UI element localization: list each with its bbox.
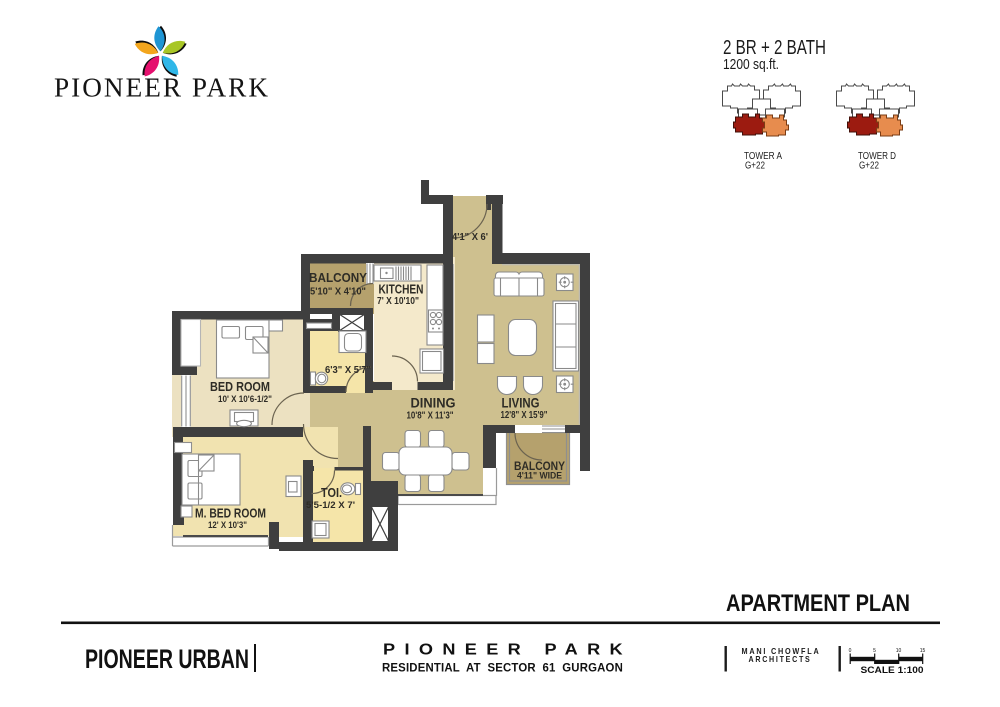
svg-text:7' X 10'10": 7' X 10'10" [377, 296, 419, 307]
svg-text:APARTMENT PLAN: APARTMENT PLAN [726, 590, 910, 617]
svg-text:5'10" X 4'10": 5'10" X 4'10" [310, 287, 366, 298]
svg-text:DINING: DINING [411, 396, 456, 411]
svg-text:4'1" X 6': 4'1" X 6' [452, 232, 488, 243]
svg-text:10' X 10'6-1/2": 10' X 10'6-1/2" [218, 394, 272, 405]
svg-text:12'8" X 15'9": 12'8" X 15'9" [501, 410, 548, 421]
svg-text:ARCHITECTS: ARCHITECTS [749, 655, 812, 664]
svg-text:M. BED ROOM: M. BED ROOM [195, 507, 266, 521]
svg-text:G+22: G+22 [859, 161, 879, 172]
svg-text:TOI.: TOI. [321, 485, 342, 500]
svg-text:2 BR + 2 BATH: 2 BR + 2 BATH [723, 37, 826, 59]
svg-text:4'11" WIDE: 4'11" WIDE [517, 471, 562, 481]
svg-text:PIONEER PARK: PIONEER PARK [54, 73, 270, 103]
svg-text:PIONEER PARK: PIONEER PARK [383, 642, 632, 659]
svg-text:15: 15 [920, 648, 926, 654]
svg-text:SCALE 1:100: SCALE 1:100 [861, 665, 924, 675]
svg-text:G+22: G+22 [745, 161, 765, 172]
svg-text:10'8" X 11'3": 10'8" X 11'3" [407, 411, 454, 422]
svg-text:6'3" X 5'7": 6'3" X 5'7" [325, 364, 371, 376]
svg-text:KITCHEN: KITCHEN [379, 283, 424, 297]
svg-text:RESIDENTIAL AT SECTOR 61 GURGA: RESIDENTIAL AT SECTOR 61 GURGAON [382, 661, 623, 675]
svg-text:5: 5 [873, 648, 876, 654]
svg-text:LIVING: LIVING [502, 396, 540, 411]
svg-text:5'5-1/2 X 7': 5'5-1/2 X 7' [306, 500, 355, 511]
svg-text:1200 sq.ft.: 1200 sq.ft. [723, 57, 779, 73]
svg-text:BED ROOM: BED ROOM [210, 380, 270, 394]
svg-text:12' X 10'3": 12' X 10'3" [208, 520, 247, 531]
svg-text:0: 0 [849, 648, 852, 654]
svg-text:10: 10 [896, 648, 902, 654]
svg-text:BALCONY: BALCONY [309, 271, 368, 285]
svg-text:PIONEER URBAN: PIONEER URBAN [85, 644, 249, 674]
